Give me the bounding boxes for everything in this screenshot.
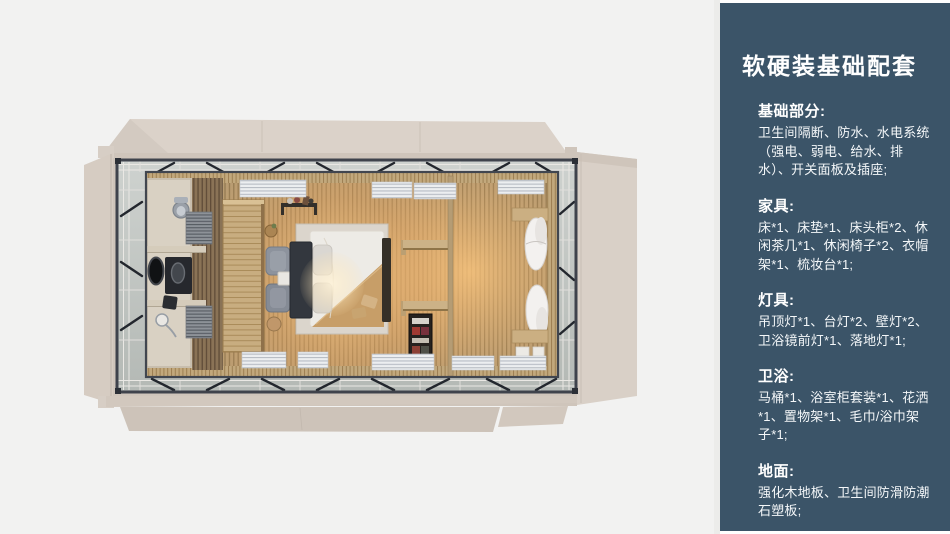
panel-title: 软硬装基础配套	[742, 47, 932, 81]
spec-section-basics: 基础部分: 卫生间隔断、防水、水电系统（强电、弱电、给水、排水）、开关面板及插座…	[758, 103, 932, 180]
spec-section-bathroom: 卫浴: 马桶*1、浴室柜套装*1、花洒*1、置物架*1、毛巾/浴巾架子*1;	[758, 368, 932, 445]
shower-head	[156, 314, 168, 326]
bed	[290, 231, 391, 327]
section-heading: 家具:	[758, 198, 932, 215]
right-flap	[577, 152, 637, 405]
section-body: 吊顶灯*1、台灯*2、壁灯*2、卫浴镜前灯*1、落地灯*1;	[758, 313, 932, 350]
pouf	[267, 317, 281, 331]
section-heading: 地面:	[758, 463, 932, 480]
towel-rack	[186, 212, 212, 244]
section-heading: 基础部分:	[758, 103, 932, 120]
lamp-glow	[300, 252, 364, 316]
section-body: 马桶*1、浴室柜套装*1、花洒*1、置物架*1、毛巾/浴巾架子*1;	[758, 389, 932, 445]
spec-panel: 软硬装基础配套 基础部分: 卫生间隔断、防水、水电系统（强电、弱电、给水、排水）…	[720, 3, 950, 531]
spec-section-lighting: 灯具: 吊顶灯*1、台灯*2、壁灯*2、卫浴镜前灯*1、落地灯*1;	[758, 292, 932, 350]
spec-section-flooring: 地面: 强化木地板、卫生间防滑防潮石塑板;	[758, 463, 932, 521]
section-heading: 卫浴:	[758, 368, 932, 385]
section-body: 强化木地板、卫生间防滑防潮石塑板;	[758, 484, 932, 521]
floorplan-render	[0, 0, 714, 534]
left-flap	[84, 153, 113, 404]
partition-wall	[448, 176, 453, 376]
spec-section-furniture: 家具: 床*1、床垫*1、床头柜*2、休闲茶几*1、休闲椅子*2、衣帽架*1、梳…	[758, 198, 932, 275]
section-heading: 灯具:	[758, 292, 932, 309]
floorplan-canvas	[0, 0, 714, 534]
wardrobe	[223, 200, 264, 352]
sink-basin	[172, 263, 185, 283]
vanity-mirror	[149, 258, 164, 285]
tea-table	[278, 272, 291, 285]
bottom-flap	[120, 407, 500, 432]
section-body: 卫生间隔断、防水、水电系统（强电、弱电、给水、排水）、开关面板及插座;	[758, 124, 932, 180]
section-body: 床*1、床垫*1、床头柜*2、休闲茶几*1、休闲椅子*2、衣帽架*1、梳妆台*1…	[758, 219, 932, 275]
foot-bench	[382, 238, 391, 322]
towel-rack	[186, 306, 212, 338]
slat-wall	[192, 178, 223, 370]
top-flap	[104, 119, 567, 153]
